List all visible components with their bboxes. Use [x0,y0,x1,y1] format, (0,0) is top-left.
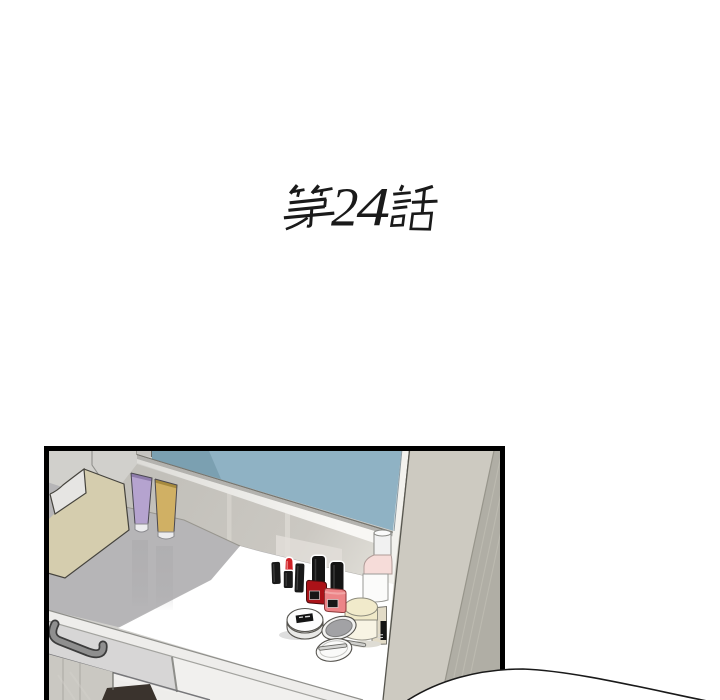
svg-text:4: 4 [357,177,391,238]
svg-text:2: 2 [331,177,359,238]
